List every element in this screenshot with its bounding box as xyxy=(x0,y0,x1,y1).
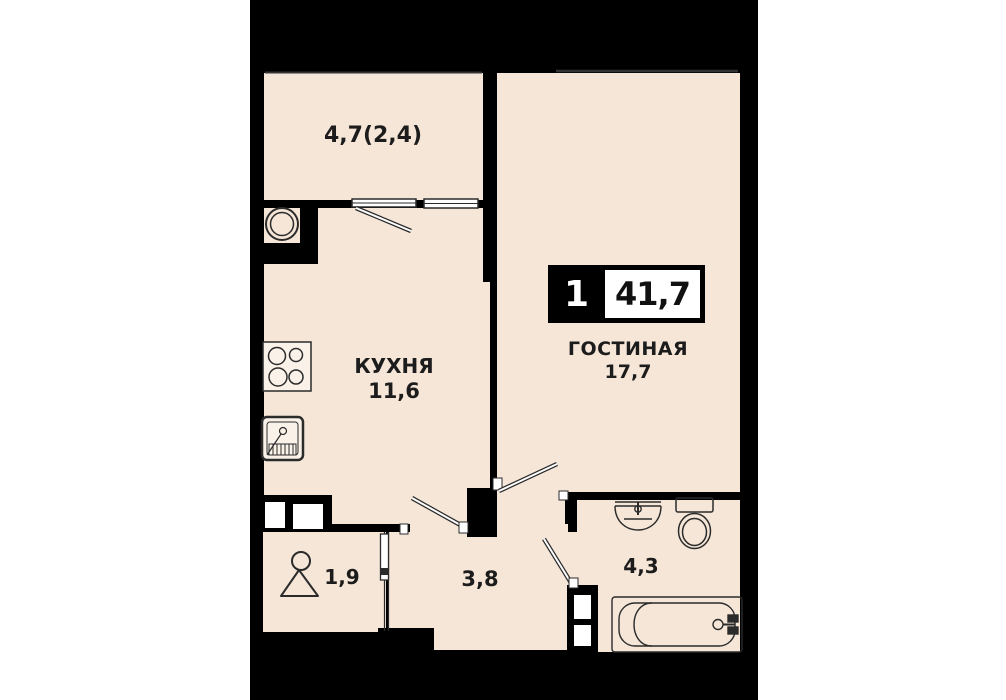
bathroom-area-label: 4,3 xyxy=(601,556,681,577)
duct-riser-icon xyxy=(574,625,591,646)
badge-room-count: 1 xyxy=(548,265,605,323)
kitchen-living-wall-thick xyxy=(483,198,497,282)
wardrobe-area-label: 1,9 xyxy=(302,567,382,588)
kitchen-living-wall-thin xyxy=(490,282,497,497)
floor-plan: 4,7(2,4) КУХНЯ 11,6 ГОСТИНАЯ 17,7 3,8 1,… xyxy=(0,0,1006,700)
duct-riser-icon xyxy=(293,504,323,529)
kitchen-name-label: КУХНЯ xyxy=(314,356,474,377)
bathroom-doorway xyxy=(565,532,577,586)
balcony-area-label: 4,7(2,4) xyxy=(293,124,453,147)
duct-riser-icon xyxy=(574,595,591,619)
hall-corner-wall-block xyxy=(467,488,497,537)
entry-step-block xyxy=(378,628,434,656)
hall-kitchen-doorway xyxy=(408,520,467,532)
living-name-label: ГОСТИНАЯ xyxy=(548,340,708,360)
living-area-label: 17,7 xyxy=(548,363,708,383)
duct-riser-icon xyxy=(265,502,285,528)
badge-total-area: 41,7 xyxy=(605,270,700,318)
kitchen-area-label: 11,6 xyxy=(314,380,474,402)
vent-enclosure-wall-bottom xyxy=(256,243,318,264)
kitchen-bottom-wall-thin xyxy=(330,524,410,532)
hall-living-doorway xyxy=(497,492,565,526)
hallway-area-label: 3,8 xyxy=(440,568,520,590)
apartment-badge: 1 41,7 xyxy=(548,265,705,323)
